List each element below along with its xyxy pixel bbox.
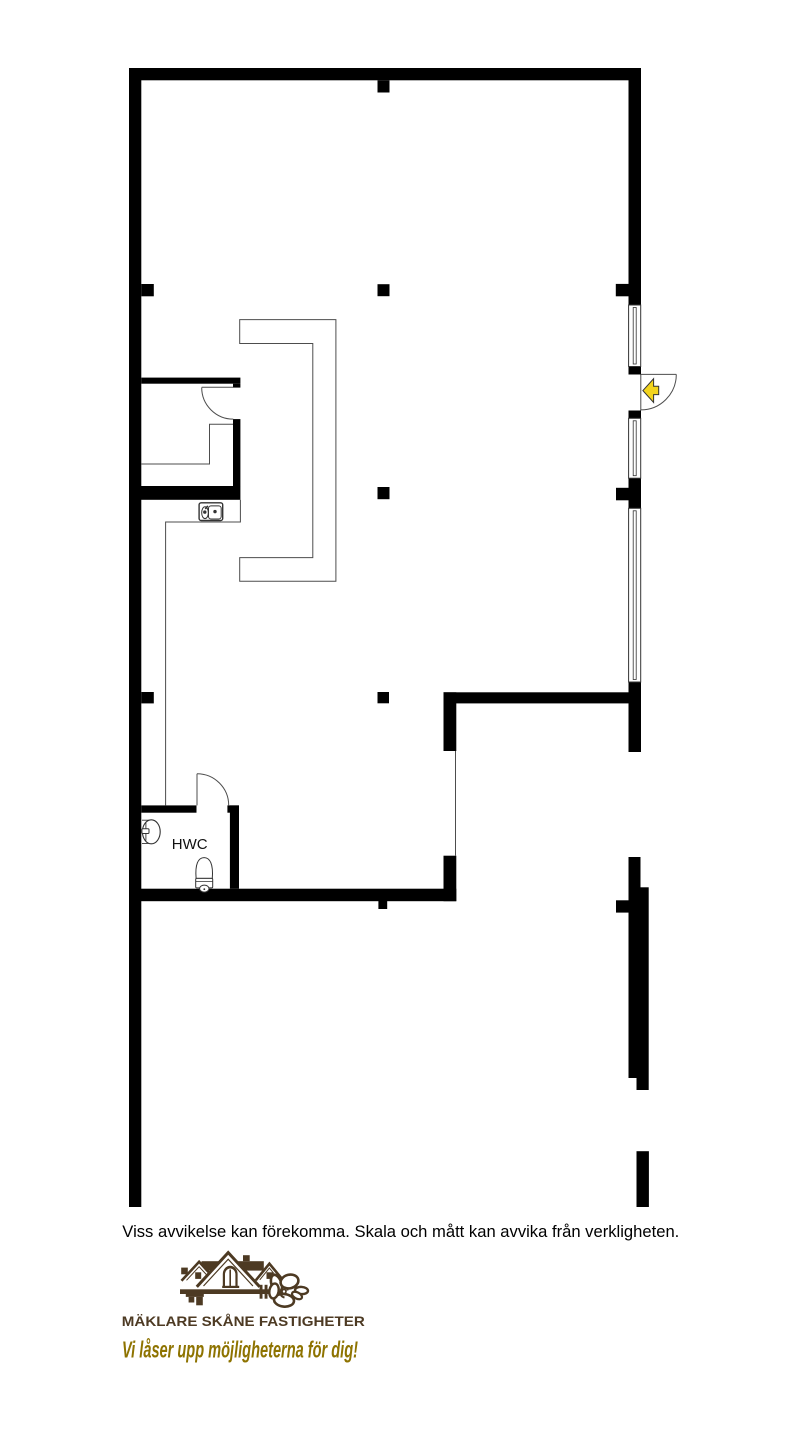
svg-text:MÄKLARE SKÅNE FASTIGHETER: MÄKLARE SKÅNE FASTIGHETER <box>122 1313 365 1329</box>
svg-text:Viss avvikelse kan förekomma.: Viss avvikelse kan förekomma. Skala och … <box>122 1222 679 1241</box>
svg-text:HWC: HWC <box>172 836 208 853</box>
svg-text:Vi låser upp möjligheterna för: Vi låser upp möjligheterna för dig! <box>122 1337 358 1363</box>
